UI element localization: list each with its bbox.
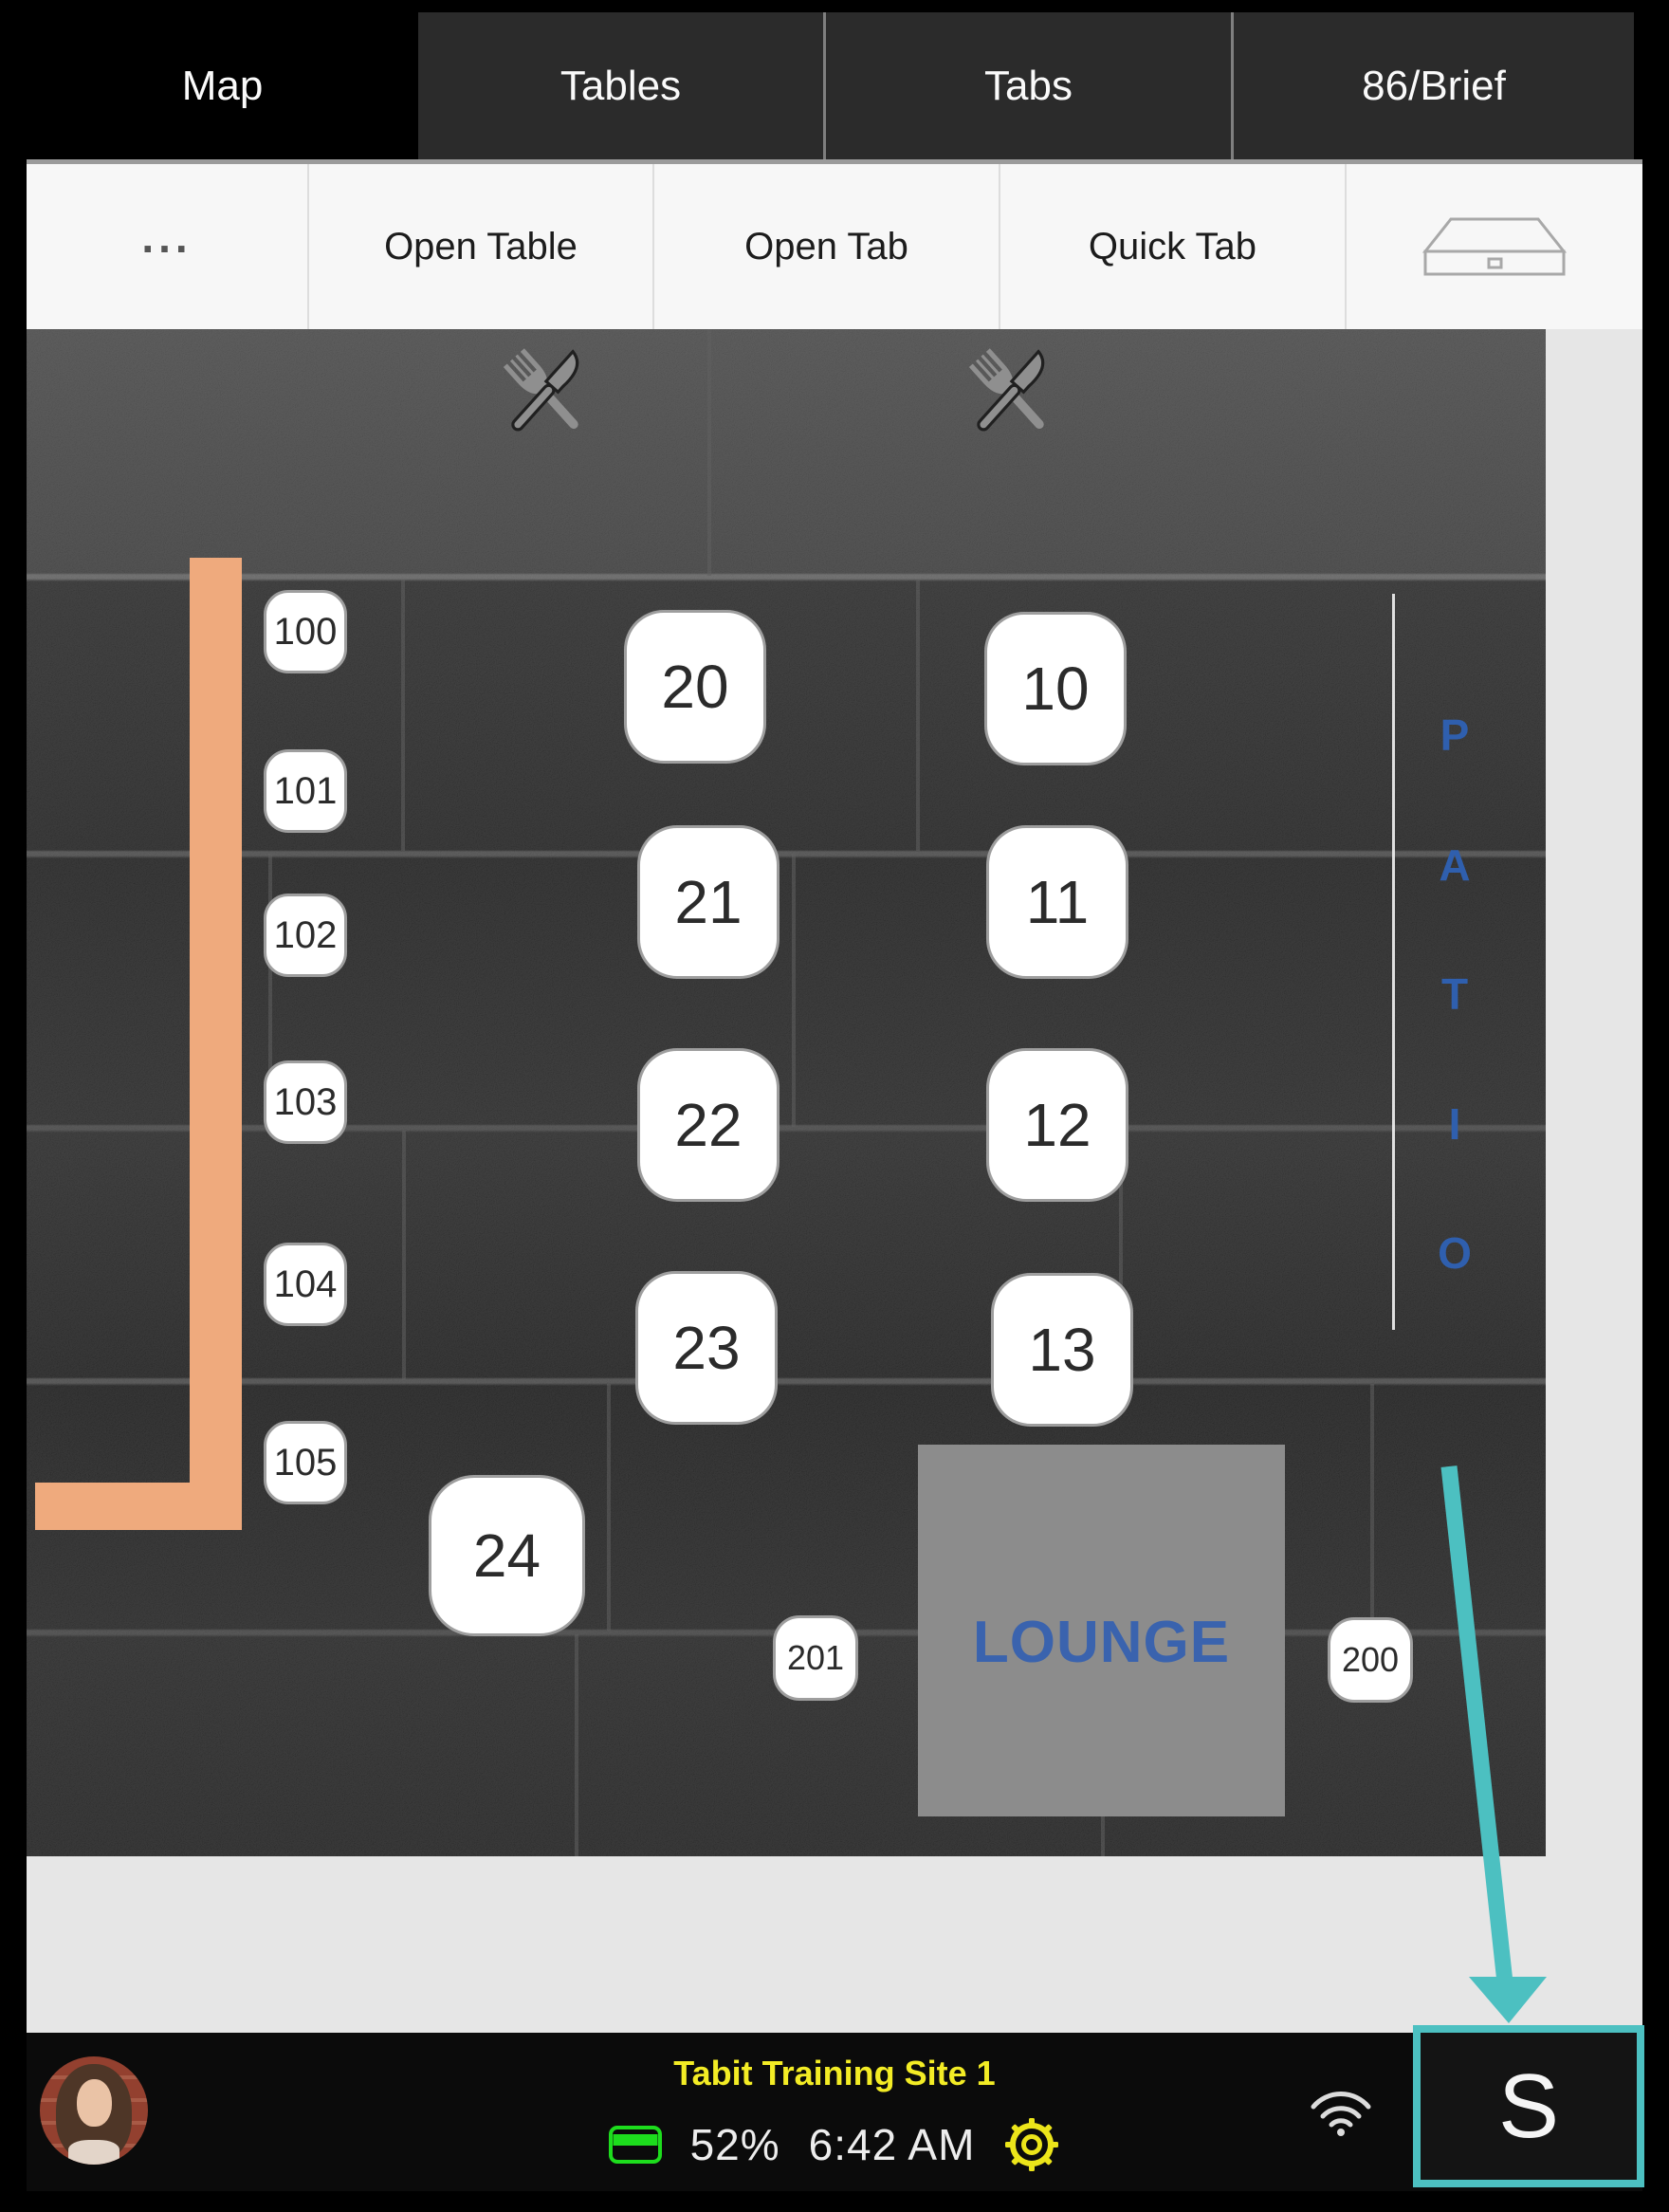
- server-initial-button[interactable]: S: [1413, 2025, 1644, 2187]
- server-initial-label: S: [1498, 2055, 1559, 2159]
- cash-drawer-button[interactable]: [1347, 164, 1642, 329]
- floor-map-photo: P A T I O LOUNGE 100 101 102 103 104 105…: [27, 329, 1546, 1856]
- fork-knife-icon: [490, 338, 600, 448]
- table-button-21[interactable]: 21: [637, 825, 779, 979]
- patio-zone-label: P A T I O: [1424, 705, 1485, 1283]
- open-tab-label: Open Tab: [744, 226, 908, 268]
- table-button-24[interactable]: 24: [429, 1475, 585, 1636]
- table-button-200[interactable]: 200: [1328, 1617, 1413, 1703]
- status-row: 52% 6:42 AM: [27, 2116, 1642, 2173]
- open-table-button[interactable]: Open Table: [309, 164, 654, 329]
- table-button-100[interactable]: 100: [264, 590, 347, 673]
- wifi-icon: [1309, 2085, 1373, 2140]
- table-button-102[interactable]: 102: [264, 894, 347, 977]
- cash-drawer-icon: [1422, 216, 1567, 277]
- table-button-23[interactable]: 23: [635, 1271, 778, 1425]
- clock-time: 6:42 AM: [809, 2119, 976, 2170]
- top-nav-bar: Map Tables Tabs 86/Brief: [27, 12, 1642, 159]
- site-name: Tabit Training Site 1: [27, 2054, 1642, 2093]
- table-button-22[interactable]: 22: [637, 1048, 779, 1202]
- table-button-20[interactable]: 20: [624, 610, 766, 764]
- tab-tables-label: Tables: [560, 63, 681, 110]
- table-button-13[interactable]: 13: [991, 1273, 1133, 1427]
- tab-map-label: Map: [182, 63, 264, 110]
- more-options-button[interactable]: ...: [27, 164, 309, 329]
- battery-percent: 52%: [690, 2119, 780, 2170]
- lounge-label: LOUNGE: [973, 1609, 1230, 1676]
- status-bar: Tabit Training Site 1 52% 6:42 AM: [27, 2033, 1642, 2191]
- lounge-zone[interactable]: LOUNGE: [918, 1445, 1285, 1816]
- tab-map[interactable]: Map: [27, 12, 418, 159]
- table-button-10[interactable]: 10: [984, 612, 1127, 765]
- action-toolbar: ... Open Table Open Tab Quick Tab: [27, 164, 1642, 329]
- fork-knife-icon: [956, 338, 1066, 448]
- wall-divider-vertical: [190, 558, 242, 1530]
- table-button-11[interactable]: 11: [986, 825, 1128, 979]
- quick-tab-label: Quick Tab: [1089, 226, 1256, 268]
- open-tab-button[interactable]: Open Tab: [654, 164, 1000, 329]
- tab-86-brief[interactable]: 86/Brief: [1231, 12, 1634, 159]
- tab-tables[interactable]: Tables: [418, 12, 823, 159]
- tab-86-brief-label: 86/Brief: [1362, 63, 1506, 110]
- tab-tabs-label: Tabs: [984, 63, 1073, 110]
- table-button-201[interactable]: 201: [773, 1615, 858, 1701]
- table-button-12[interactable]: 12: [986, 1048, 1128, 1202]
- table-button-103[interactable]: 103: [264, 1060, 347, 1144]
- quick-tab-button[interactable]: Quick Tab: [1000, 164, 1347, 329]
- tab-tabs[interactable]: Tabs: [823, 12, 1231, 159]
- gear-icon[interactable]: [1003, 2116, 1060, 2173]
- wall-divider-horizontal: [35, 1483, 242, 1530]
- table-button-101[interactable]: 101: [264, 749, 347, 833]
- battery-icon: [609, 2126, 662, 2164]
- table-button-104[interactable]: 104: [264, 1243, 347, 1326]
- floor-map-area: P A T I O LOUNGE 100 101 102 103 104 105…: [27, 329, 1642, 2033]
- table-button-105[interactable]: 105: [264, 1421, 347, 1504]
- ellipsis-icon: ...: [141, 212, 192, 263]
- open-table-label: Open Table: [384, 226, 578, 268]
- patio-boundary-line: [1392, 594, 1395, 1330]
